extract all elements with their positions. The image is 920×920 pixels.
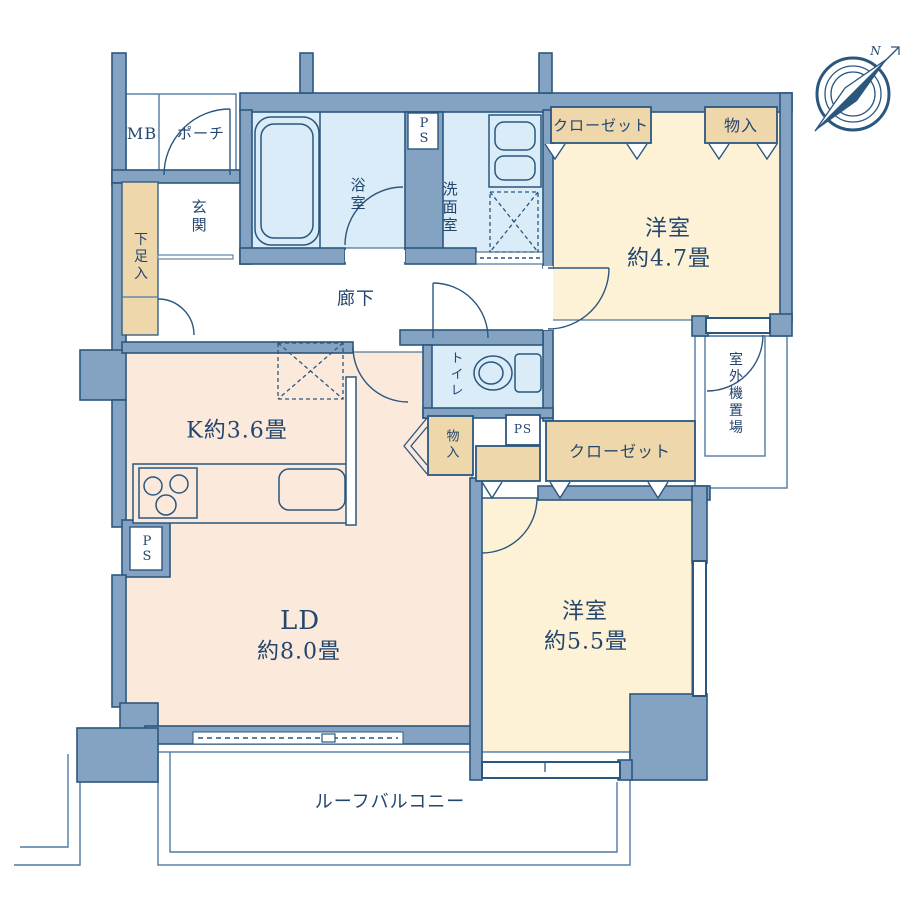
bath-door-opening [345, 250, 405, 262]
window-handle [322, 734, 335, 742]
label-porch: ポーチ [177, 125, 225, 142]
label-corridor: 廊下 [337, 290, 375, 311]
label-roof-balcony: ルーフバルコニー [315, 793, 466, 814]
eave-outline-2 [14, 782, 80, 865]
label-storage-top: 物入 [724, 117, 758, 135]
compass-north-tick [887, 47, 899, 59]
label-ps-mid: PS [514, 423, 532, 437]
label-closet-mid: クローゼット [569, 443, 671, 461]
label-western47-name: 洋室 [645, 216, 691, 241]
label-ld-size: 約8.0畳 [257, 639, 341, 664]
counter-top [133, 464, 350, 523]
wall [400, 330, 543, 345]
label-washroom: 洗面室 [440, 181, 457, 235]
wall [112, 400, 126, 527]
label-bath: 浴室 [348, 177, 365, 213]
counter-partition [346, 377, 356, 525]
label-outdoor-unit: 室外機置場 [727, 352, 743, 437]
wall [539, 53, 552, 93]
shoe-box-door-arc [158, 299, 194, 335]
label-shoe-box: 下足入 [132, 232, 148, 283]
wall [80, 350, 126, 400]
wall [423, 345, 432, 418]
storage-mid-box [476, 446, 540, 481]
wall [122, 342, 353, 353]
wall [112, 575, 126, 707]
western47-door-opening [543, 266, 553, 330]
bath-floor [252, 112, 405, 248]
western55-south-window [482, 762, 620, 778]
wall [780, 93, 792, 322]
wall [112, 170, 240, 183]
wall [770, 314, 792, 336]
wall [240, 248, 345, 264]
label-closet-top: クローゼット [553, 117, 649, 134]
wall [300, 53, 313, 93]
wall [240, 110, 252, 264]
wall [112, 53, 126, 185]
label-ps-top: PS [416, 116, 431, 146]
floor-plan-page: MB ポーチ 玄関 下足入 浴室 PS 洗面室 クローゼット 物入 洋室 約4.… [0, 0, 920, 920]
western55-east-window [693, 561, 706, 696]
genkan-step-line [158, 255, 233, 259]
label-storage-side: 物入 [443, 429, 458, 461]
label-western47-size: 約4.7畳 [627, 246, 711, 271]
wall [405, 248, 476, 264]
label-genkan: 玄関 [189, 199, 206, 235]
label-toilet: トイレ [447, 351, 462, 399]
wall [630, 694, 707, 780]
label-ld-name: LD [280, 607, 320, 637]
eave-outline-1 [20, 754, 68, 847]
compass-icon [815, 47, 899, 131]
wall [692, 486, 707, 563]
label-compass-north: N [870, 45, 882, 59]
hanger-mark [482, 482, 502, 498]
wall [77, 728, 158, 782]
wall [470, 478, 482, 780]
label-western55-name: 洋室 [562, 599, 608, 624]
label-mb: MB [127, 125, 157, 143]
label-kitchen: K約3.6畳 [186, 418, 287, 443]
western47-window [706, 318, 770, 333]
label-western55-size: 約5.5畳 [544, 629, 628, 654]
ldk-floor [122, 352, 472, 744]
label-ps-left: PS [139, 534, 154, 564]
